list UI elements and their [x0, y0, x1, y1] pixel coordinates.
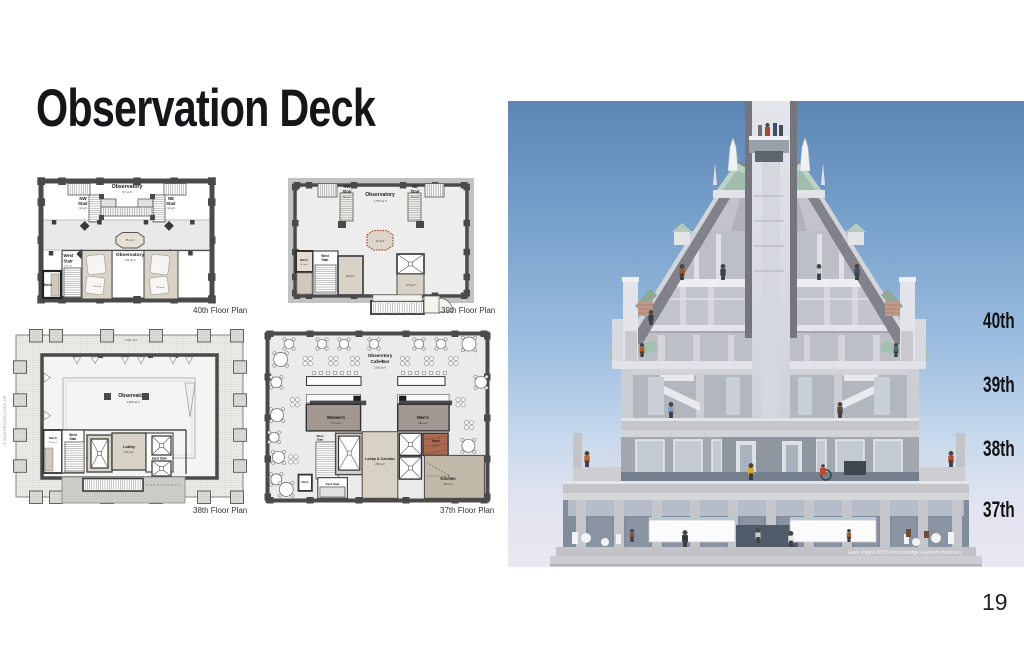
svg-text:30 sq ft: 30 sq ft — [376, 239, 385, 243]
svg-text:Mech: Mech — [49, 436, 57, 440]
svg-text:55 sq ft: 55 sq ft — [126, 238, 135, 242]
svg-text:170 sq ft: 170 sq ft — [93, 285, 102, 288]
svg-text:119 sq ft: 119 sq ft — [346, 275, 355, 278]
svg-text:20 sq ft: 20 sq ft — [432, 445, 440, 448]
svg-text:398 sq ft: 398 sq ft — [443, 483, 453, 486]
svg-text:East Stair: East Stair — [326, 482, 341, 486]
svg-text:97 sq ft: 97 sq ft — [122, 190, 131, 194]
svg-text:60 sq ft: 60 sq ft — [411, 196, 419, 199]
svg-text:Stair: Stair — [78, 201, 88, 206]
svg-text:Stair: Stair — [321, 258, 329, 262]
svg-text:120 sq ft: 120 sq ft — [64, 265, 73, 268]
svg-text:1,659 sq ft: 1,659 sq ft — [126, 400, 139, 404]
svg-text:Stair: Stair — [317, 438, 325, 442]
svg-text:Stair: Stair — [64, 259, 74, 264]
svg-text:1,031 sq ft: 1,031 sq ft — [125, 338, 137, 342]
svg-text:60 sq ft: 60 sq ft — [343, 196, 351, 199]
svg-text:Cafe/Bar: Cafe/Bar — [371, 359, 390, 364]
svg-text:2,650 sq ft: 2,650 sq ft — [374, 367, 386, 370]
svg-text:100 sq ft: 100 sq ft — [49, 441, 57, 444]
svg-text:127 sq ft: 127 sq ft — [406, 284, 416, 287]
svg-text:1,750 sq ft: 1,750 sq ft — [373, 199, 386, 203]
svg-text:42 sq ft: 42 sq ft — [79, 207, 87, 210]
svg-text:150 sq ft: 150 sq ft — [124, 451, 134, 454]
svg-text:Mech: Mech — [302, 480, 309, 484]
svg-text:181 sq ft: 181 sq ft — [418, 422, 428, 425]
svg-text:Observtory: Observtory — [368, 353, 393, 358]
svg-text:West: West — [64, 253, 75, 258]
svg-text:East Stair: East Stair — [152, 457, 167, 461]
svg-text:42 sq ft: 42 sq ft — [167, 207, 175, 210]
svg-text:259 sq ft: 259 sq ft — [375, 463, 385, 466]
svg-text:Lobby: Lobby — [123, 444, 136, 449]
svg-text:Mech: Mech — [44, 283, 52, 287]
svg-text:Stair: Stair — [342, 189, 352, 194]
svg-text:Kitchen: Kitchen — [440, 476, 456, 481]
svg-text:Stair: Stair — [410, 189, 420, 194]
svg-text:740 sq ft: 740 sq ft — [125, 258, 136, 262]
svg-text:Gary Flight 2023 Pecsatedge Ha: Gary Flight 2023 Pecsatedge Harbert Part… — [848, 550, 962, 556]
svg-text:Men's: Men's — [417, 415, 429, 420]
svg-text:Trash: Trash — [431, 439, 440, 443]
svg-text:Stair: Stair — [69, 437, 77, 441]
svg-text:Mech: Mech — [300, 258, 308, 262]
svg-text:Observatory: Observatory — [365, 192, 395, 198]
svg-text:172 sq ft: 172 sq ft — [331, 422, 341, 425]
svg-text:170 sq ft: 170 sq ft — [156, 286, 165, 289]
svg-text:Lobby & Corridor: Lobby & Corridor — [365, 457, 395, 461]
svg-text:Stair: Stair — [166, 201, 176, 206]
svg-text:Women's: Women's — [327, 415, 346, 420]
svg-text:110 sq ft: 110 sq ft — [300, 263, 308, 266]
